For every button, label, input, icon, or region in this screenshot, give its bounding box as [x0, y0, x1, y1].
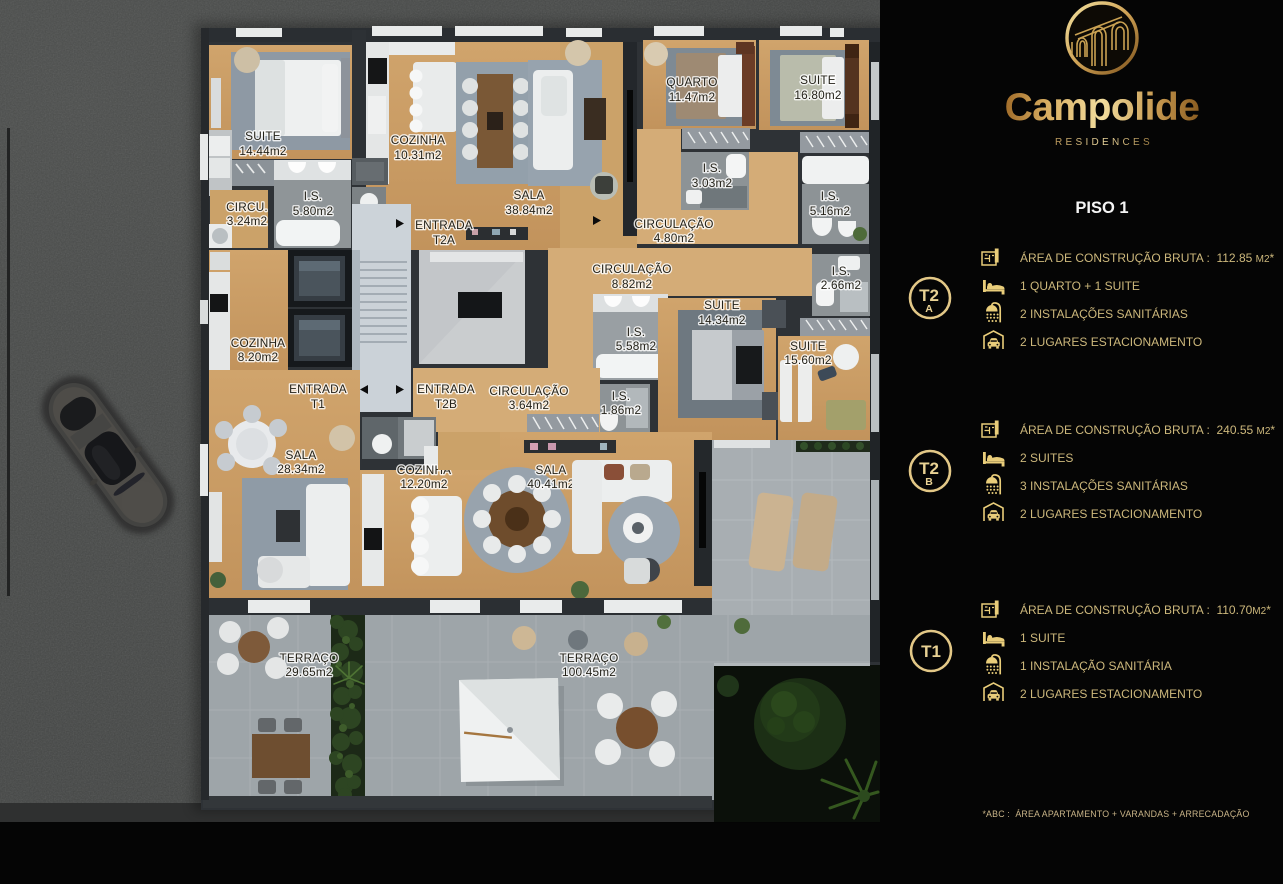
svg-text:PISO 1: PISO 1	[1075, 199, 1128, 217]
svg-text:SALA: SALA	[286, 448, 317, 462]
svg-text:3 INSTALAÇÕES SANITÁRIAS: 3 INSTALAÇÕES SANITÁRIAS	[1020, 478, 1188, 493]
svg-text:I.S.: I.S.	[832, 264, 851, 278]
svg-text:COZINHA: COZINHA	[391, 133, 446, 147]
svg-text:SALA: SALA	[514, 188, 545, 202]
svg-text:I.S.: I.S.	[703, 161, 722, 175]
svg-text:4.80m2: 4.80m2	[654, 231, 695, 245]
svg-text:2 LUGARES ESTACIONAMENTO: 2 LUGARES ESTACIONAMENTO	[1020, 507, 1202, 521]
svg-text:14.34m2: 14.34m2	[698, 313, 745, 327]
svg-text:1 QUARTO + 1 SUITE: 1 QUARTO + 1 SUITE	[1020, 279, 1140, 293]
svg-text:3.24m2: 3.24m2	[227, 214, 268, 228]
svg-text:SUITE: SUITE	[245, 129, 281, 143]
svg-text:RESIDENCES: RESIDENCES	[1055, 137, 1153, 148]
svg-text:14.44m2: 14.44m2	[239, 144, 286, 158]
svg-text:SALA: SALA	[536, 463, 567, 477]
svg-text:5.80m2: 5.80m2	[293, 204, 334, 218]
svg-text:ÁREA DE CONSTRUÇÃO BRUTA : 11: ÁREA DE CONSTRUÇÃO BRUTA : 112.85 M2*	[1020, 250, 1275, 265]
svg-text:1 INSTALAÇÃO SANITÁRIA: 1 INSTALAÇÃO SANITÁRIA	[1020, 658, 1172, 673]
svg-text:2.66m2: 2.66m2	[821, 278, 862, 292]
svg-text:1 SUITE: 1 SUITE	[1020, 631, 1065, 645]
svg-text:16.80m2: 16.80m2	[794, 88, 841, 102]
svg-text:ENTRADA: ENTRADA	[417, 382, 475, 396]
svg-text:A: A	[925, 303, 933, 315]
svg-text:11.47m2: 11.47m2	[669, 90, 715, 104]
svg-text:SUITE: SUITE	[704, 298, 740, 312]
svg-text:I.S.: I.S.	[627, 325, 646, 339]
svg-text:ENTRADA: ENTRADA	[289, 382, 347, 396]
svg-text:ÁREA DE CONSTRUÇÃO BRUTA : 24: ÁREA DE CONSTRUÇÃO BRUTA : 240.55 M2*	[1020, 422, 1275, 437]
svg-text:Campolide: Campolide	[1005, 86, 1200, 129]
svg-text:8.20m2: 8.20m2	[238, 350, 279, 364]
svg-text:5.16m2: 5.16m2	[810, 204, 851, 218]
svg-text:1.86m2: 1.86m2	[601, 403, 642, 417]
svg-text:100.45m2: 100.45m2	[562, 665, 616, 679]
svg-text:TERRAÇO: TERRAÇO	[559, 651, 618, 665]
svg-text:CIRCULAÇÃO: CIRCULAÇÃO	[489, 384, 568, 398]
svg-text:T2B: T2B	[435, 397, 457, 411]
svg-text:COZINHA: COZINHA	[231, 336, 286, 350]
svg-text:2 LUGARES ESTACIONAMENTO: 2 LUGARES ESTACIONAMENTO	[1020, 687, 1202, 701]
svg-text:40.41m2: 40.41m2	[527, 477, 574, 491]
svg-text:B: B	[925, 476, 933, 488]
svg-text:QUARTO: QUARTO	[666, 75, 717, 89]
svg-text:ENTRADA: ENTRADA	[415, 218, 473, 232]
svg-text:CIRCULAÇÃO: CIRCULAÇÃO	[634, 217, 713, 231]
svg-text:10.31m2: 10.31m2	[394, 148, 441, 162]
svg-text:*ABC : ÁREA APARTAMENTO + VAR: *ABC : ÁREA APARTAMENTO + VARANDAS + ARR…	[982, 809, 1249, 819]
svg-text:3.03m2: 3.03m2	[692, 176, 733, 190]
svg-text:5.58m2: 5.58m2	[616, 339, 657, 353]
svg-text:TERRAÇO: TERRAÇO	[279, 651, 338, 665]
svg-text:ÁREA DE CONSTRUÇÃO BRUTA : 11: ÁREA DE CONSTRUÇÃO BRUTA : 110.70M2*	[1020, 602, 1271, 617]
svg-text:2 INSTALAÇÕES SANITÁRIAS: 2 INSTALAÇÕES SANITÁRIAS	[1020, 306, 1188, 321]
svg-text:15.60m2: 15.60m2	[784, 353, 831, 367]
svg-text:I.S.: I.S.	[821, 189, 840, 203]
svg-text:2 SUITES: 2 SUITES	[1020, 451, 1073, 465]
svg-text:38.84m2: 38.84m2	[505, 203, 552, 217]
svg-text:CIRCU.: CIRCU.	[226, 200, 268, 214]
svg-text:29.65m2: 29.65m2	[285, 665, 332, 679]
svg-text:28.34m2: 28.34m2	[277, 462, 324, 476]
svg-text:12.20m2: 12.20m2	[400, 477, 447, 491]
svg-text:SUITE: SUITE	[800, 73, 836, 87]
svg-text:2 LUGARES ESTACIONAMENTO: 2 LUGARES ESTACIONAMENTO	[1020, 335, 1202, 349]
svg-text:T1: T1	[921, 642, 941, 661]
svg-text:T1: T1	[311, 397, 325, 411]
svg-text:CIRCULAÇÃO: CIRCULAÇÃO	[592, 262, 671, 276]
svg-text:SUITE: SUITE	[790, 339, 826, 353]
svg-text:8.82m2: 8.82m2	[612, 277, 653, 291]
svg-text:T2A: T2A	[433, 233, 455, 247]
svg-text:3.64m2: 3.64m2	[509, 398, 550, 412]
svg-text:I.S.: I.S.	[612, 389, 631, 403]
svg-text:I.S.: I.S.	[304, 189, 323, 203]
